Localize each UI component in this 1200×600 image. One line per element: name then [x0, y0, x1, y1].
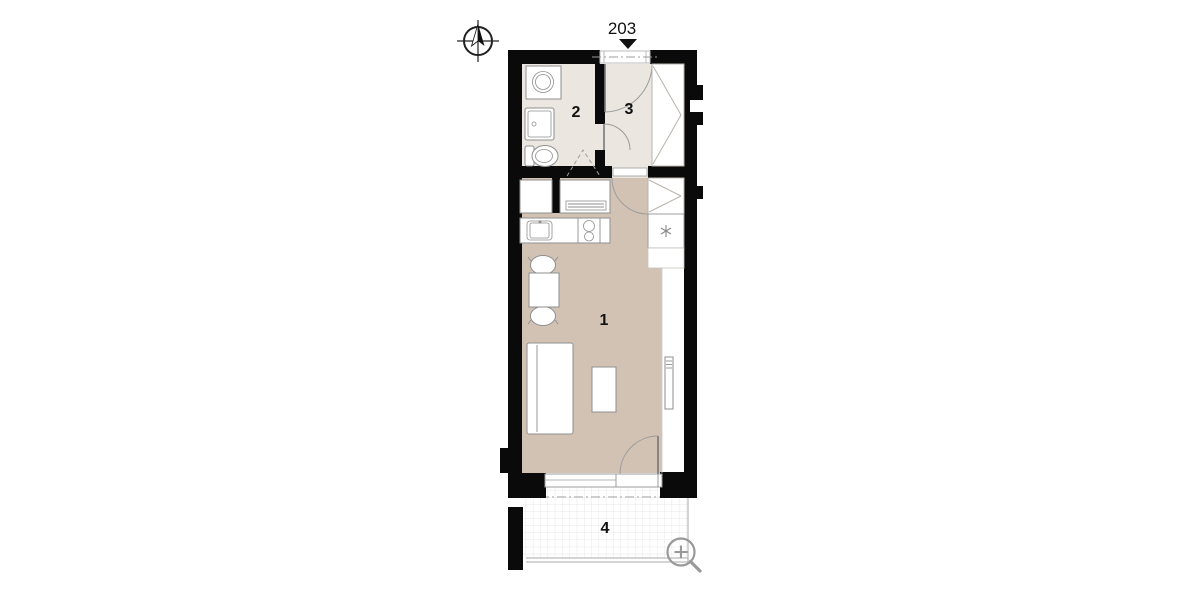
wall-segment — [508, 507, 523, 570]
partition-stub — [552, 178, 560, 213]
coffee-table-icon — [592, 367, 616, 412]
door-leaf — [613, 168, 647, 176]
fridge-icon — [648, 214, 684, 248]
sofa-bed-icon — [527, 343, 573, 434]
wall-pilaster — [697, 186, 703, 199]
partition-wall — [648, 166, 684, 178]
window-band — [545, 474, 662, 487]
unit-number-label: 203 — [608, 19, 636, 38]
kitchen — [520, 180, 610, 243]
north-arrow-icon — [457, 20, 499, 62]
floor-plan-drawing: 203 1 2 3 4 — [0, 0, 1200, 600]
washing-machine-icon — [526, 66, 561, 99]
living-storage-column — [648, 178, 684, 268]
room-label-4: 4 — [601, 520, 610, 537]
kitchen-appliance-icon — [560, 180, 610, 213]
wardrobe-icon — [648, 178, 684, 214]
wall-niche — [690, 100, 703, 112]
floor-plan-page: 203 1 2 3 4 — [0, 0, 1200, 600]
room-label-1: 1 — [600, 312, 609, 329]
toilet-icon — [525, 146, 558, 167]
partition-wall — [508, 166, 612, 178]
hall-wardrobe-icon — [652, 64, 684, 166]
dining-table-icon — [529, 273, 559, 307]
wall-segment — [500, 448, 522, 473]
wall-segment — [660, 472, 697, 498]
cabinet-icon — [648, 248, 684, 268]
entrance-threshold — [600, 51, 650, 63]
wall-segment — [508, 473, 546, 498]
kitchen-cabinet-icon — [520, 180, 552, 213]
wall-segment — [508, 50, 522, 448]
wall-segment — [684, 50, 697, 472]
partition-wall — [595, 150, 605, 166]
room-label-2: 2 — [572, 104, 581, 121]
entrance-marker-icon — [619, 39, 637, 49]
radiator-icon — [665, 357, 673, 409]
kitchen-counter — [520, 218, 610, 243]
partition-wall — [595, 64, 605, 124]
bathroom-sink-icon — [525, 108, 554, 140]
room-label-3: 3 — [625, 101, 634, 118]
